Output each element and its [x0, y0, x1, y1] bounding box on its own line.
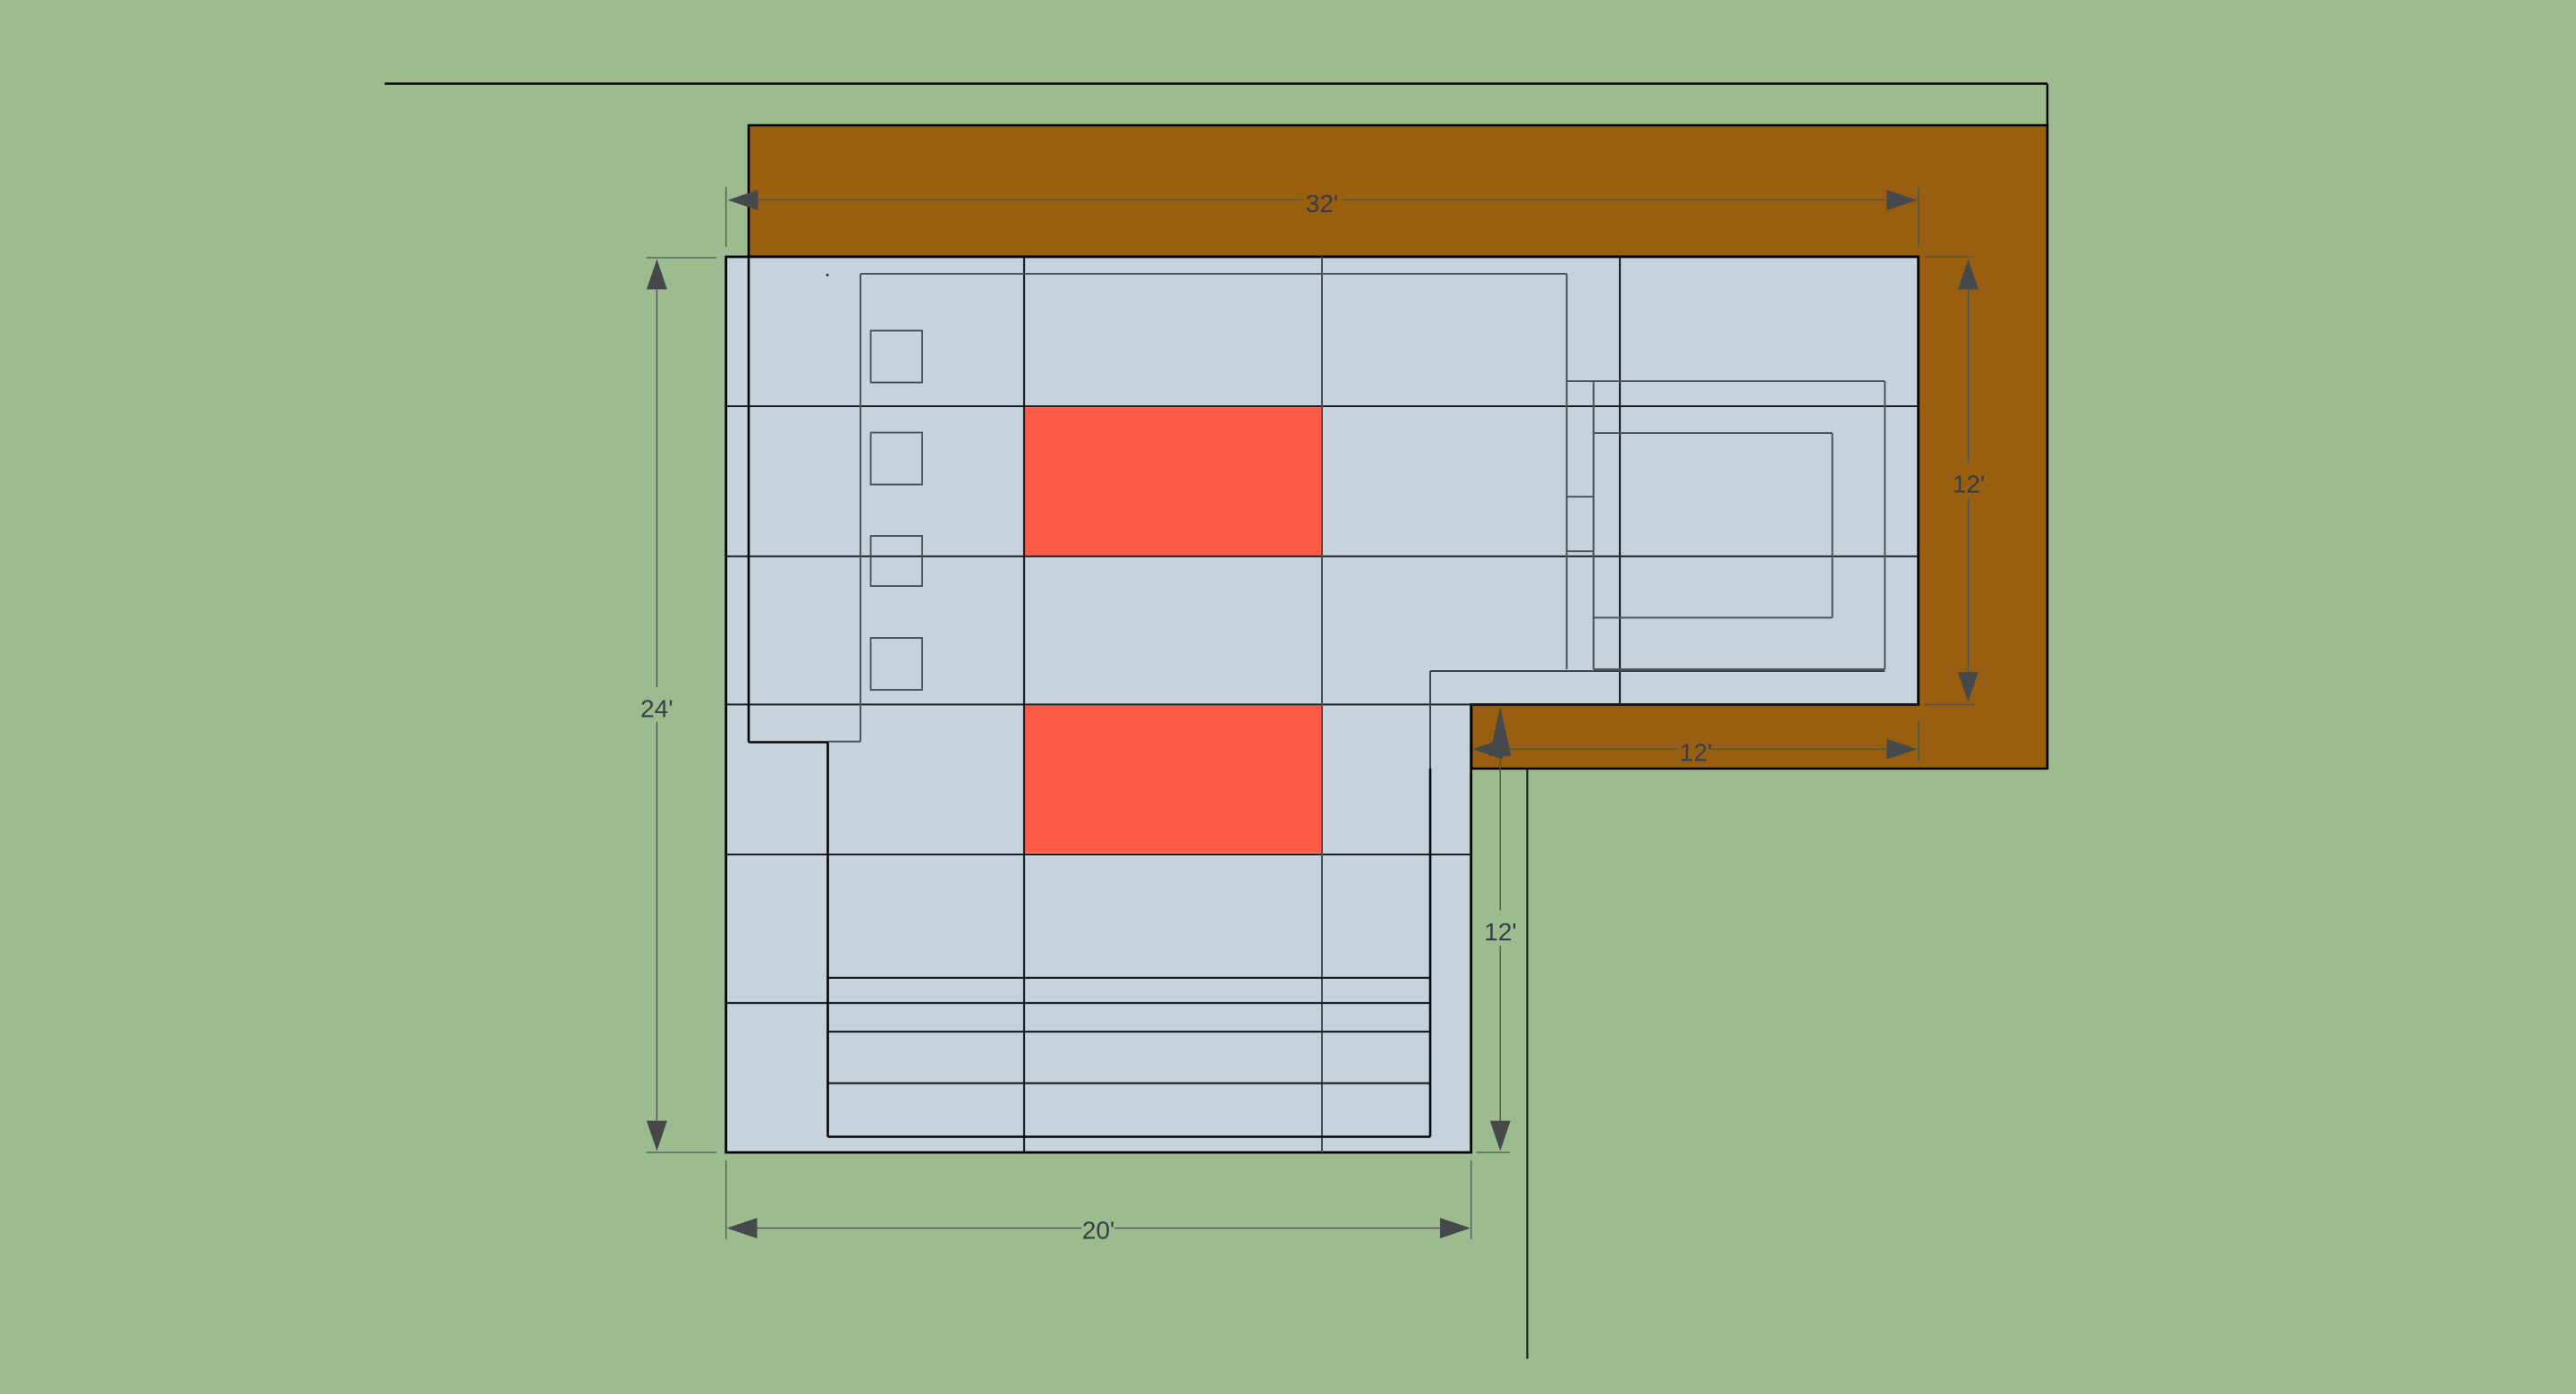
svg-text:12': 12': [1953, 470, 1986, 497]
svg-text:32': 32': [1306, 190, 1339, 217]
svg-text:12': 12': [1680, 739, 1713, 767]
svg-text:20': 20': [1082, 1217, 1115, 1245]
svg-text:12': 12': [1484, 918, 1517, 946]
svg-text:24': 24': [640, 694, 674, 722]
